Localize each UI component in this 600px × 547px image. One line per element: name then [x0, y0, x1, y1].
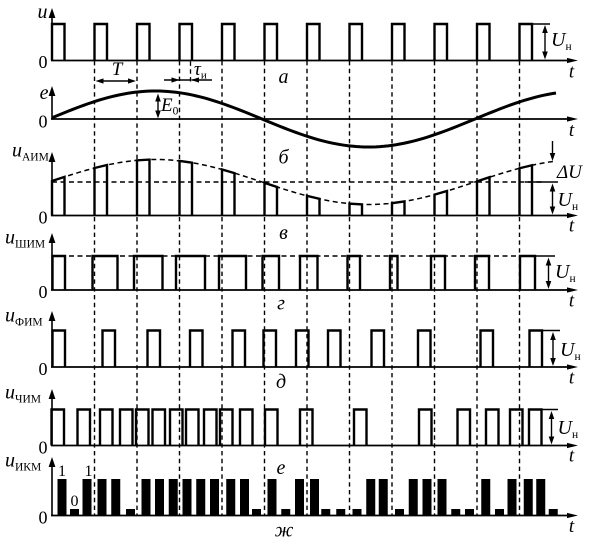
svg-text:T: T	[112, 59, 124, 80]
svg-text:0: 0	[39, 208, 48, 228]
svg-text:1: 1	[85, 463, 93, 480]
svg-text:u: u	[38, 1, 48, 23]
svg-text:г: г	[277, 293, 285, 315]
svg-text:в: в	[279, 222, 288, 244]
svg-text:t: t	[569, 368, 575, 389]
svg-text:e: e	[40, 82, 49, 104]
svg-text:0: 0	[39, 112, 48, 132]
svg-text:1: 1	[58, 463, 66, 480]
svg-text:0: 0	[39, 282, 48, 302]
svg-text:б: б	[278, 147, 289, 169]
svg-text:0: 0	[71, 493, 79, 510]
svg-text:а: а	[279, 66, 289, 88]
svg-text:t: t	[569, 516, 575, 537]
svg-text:0: 0	[39, 52, 48, 72]
svg-text:д: д	[276, 371, 286, 393]
svg-text:ж: ж	[275, 520, 294, 542]
svg-text:t: t	[569, 120, 575, 141]
svg-text:t: t	[569, 62, 575, 83]
svg-text:0: 0	[39, 438, 48, 458]
svg-text:t: t	[569, 291, 575, 312]
svg-text:0: 0	[39, 359, 48, 379]
svg-text:0: 0	[39, 508, 48, 528]
svg-text:t: t	[569, 216, 575, 237]
svg-text:е: е	[277, 457, 286, 479]
svg-text:ΔU: ΔU	[556, 162, 583, 183]
svg-text:t: t	[569, 446, 575, 467]
